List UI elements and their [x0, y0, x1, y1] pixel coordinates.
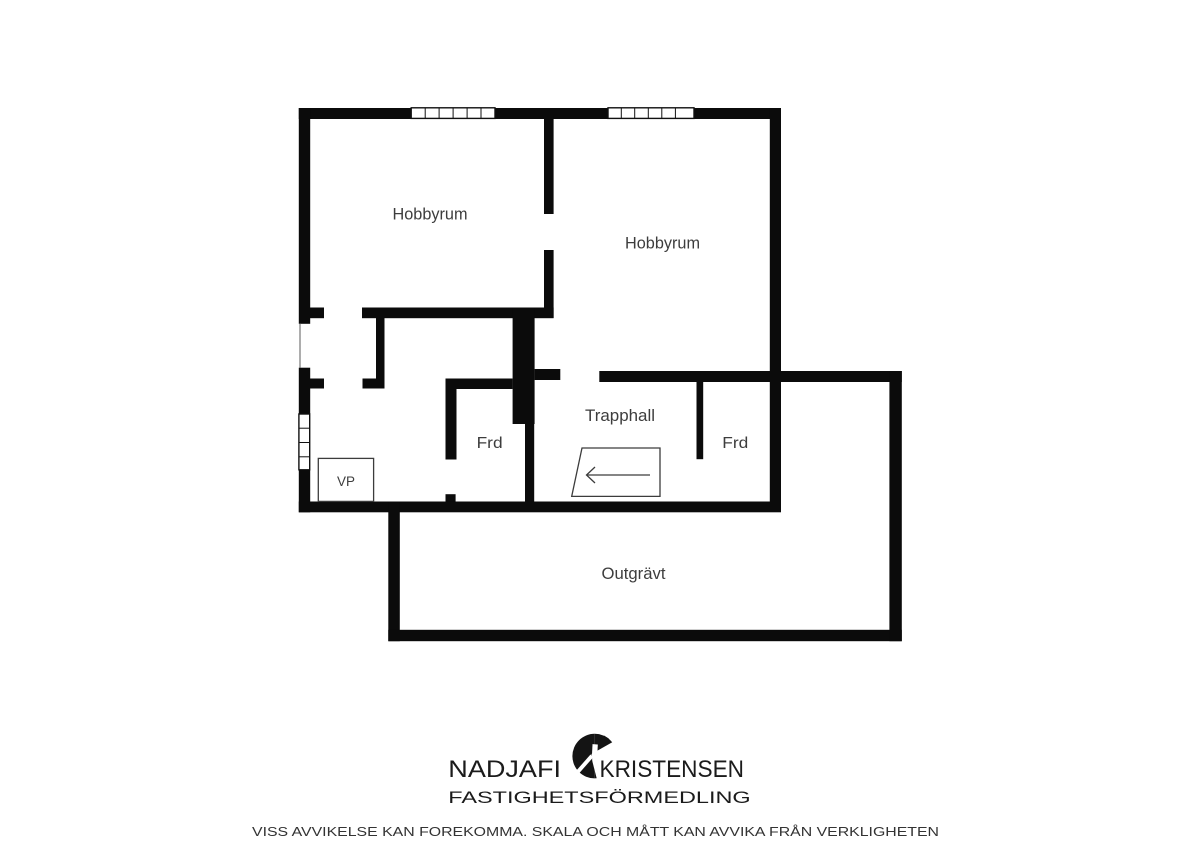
svg-text:VISS AVVIKELSE KAN FOREKOMMA.: VISS AVVIKELSE KAN FOREKOMMA. SKALA OCH … [252, 824, 939, 839]
svg-text:FASTIGHETSFÖRMEDLING: FASTIGHETSFÖRMEDLING [448, 788, 750, 807]
svg-text:Hobbyrum: Hobbyrum [625, 235, 700, 253]
svg-text:KRISTENSEN: KRISTENSEN [600, 756, 745, 783]
svg-text:Outgrävt: Outgrävt [602, 565, 666, 583]
svg-text:Hobbyrum: Hobbyrum [393, 206, 468, 224]
svg-text:Trapphall: Trapphall [585, 407, 655, 425]
svg-text:Frd: Frd [722, 435, 748, 452]
svg-text:Frd: Frd [477, 435, 503, 452]
svg-text:VP: VP [337, 474, 355, 489]
svg-text:NADJAFI: NADJAFI [448, 756, 561, 783]
